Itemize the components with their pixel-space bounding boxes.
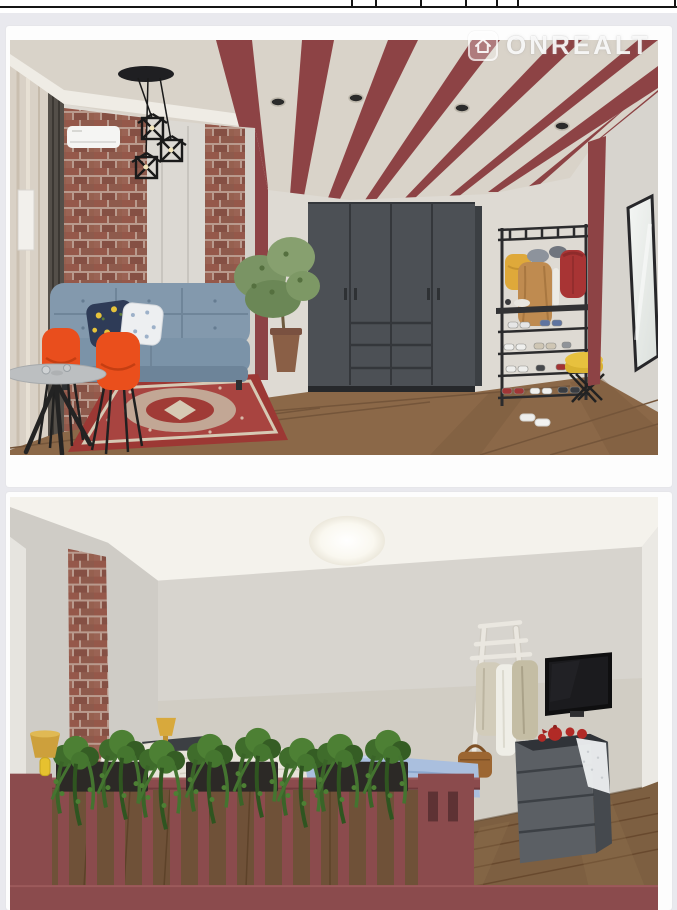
- ceiling-light: [309, 516, 385, 566]
- wardrobe: [308, 202, 482, 392]
- render-bedroom[interactable]: [10, 497, 658, 910]
- window-wall: [10, 62, 48, 455]
- cap: [527, 249, 549, 263]
- render-living-room[interactable]: [10, 40, 658, 455]
- table-bottom-edge: [0, 0, 677, 13]
- air-conditioner: [67, 126, 120, 148]
- tan-coat: [518, 262, 552, 326]
- gallery-card-bedroom: [6, 492, 672, 910]
- dresser: [515, 725, 612, 863]
- tv: [545, 652, 612, 717]
- red-jacket: [560, 250, 586, 298]
- table-rule: [0, 6, 677, 8]
- gallery-card-living-room: [6, 26, 672, 487]
- scarf: [553, 268, 559, 306]
- bottom-rail: [10, 885, 658, 910]
